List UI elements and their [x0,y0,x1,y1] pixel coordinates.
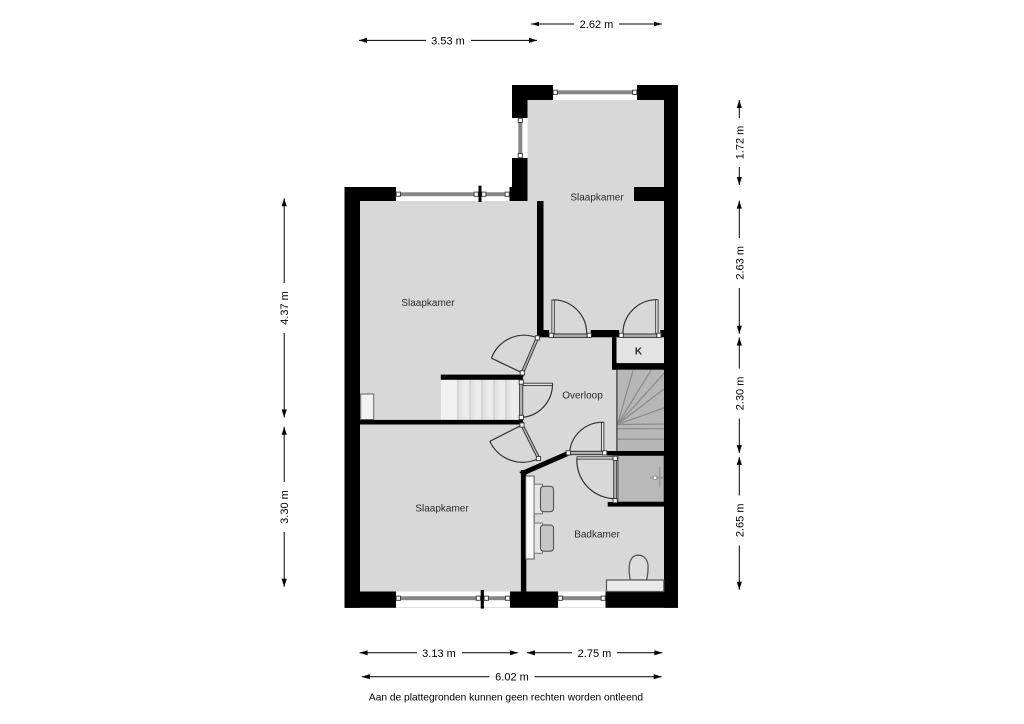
svg-text:3.13 m: 3.13 m [422,648,456,660]
svg-text:1.72 m: 1.72 m [734,126,746,160]
svg-text:4.37 m: 4.37 m [279,291,291,325]
svg-text:Overloop: Overloop [562,391,603,402]
svg-text:2.62 m: 2.62 m [580,19,614,31]
svg-text:6.02 m: 6.02 m [495,672,529,684]
svg-text:Aan de plattegronden kunnen ge: Aan de plattegronden kunnen geen rechten… [369,693,643,704]
svg-text:2.65 m: 2.65 m [734,503,746,537]
svg-text:2.63 m: 2.63 m [734,246,746,280]
svg-text:K: K [635,347,643,358]
svg-text:3.30 m: 3.30 m [279,490,291,524]
svg-text:Badkamer: Badkamer [574,530,620,541]
svg-text:Slaapkamer: Slaapkamer [570,193,624,204]
svg-text:2.30 m: 2.30 m [734,377,746,411]
svg-text:3.53 m: 3.53 m [431,35,465,47]
svg-text:2.75 m: 2.75 m [578,648,612,660]
svg-text:Slaapkamer: Slaapkamer [401,298,455,309]
svg-text:Slaapkamer: Slaapkamer [415,504,469,515]
